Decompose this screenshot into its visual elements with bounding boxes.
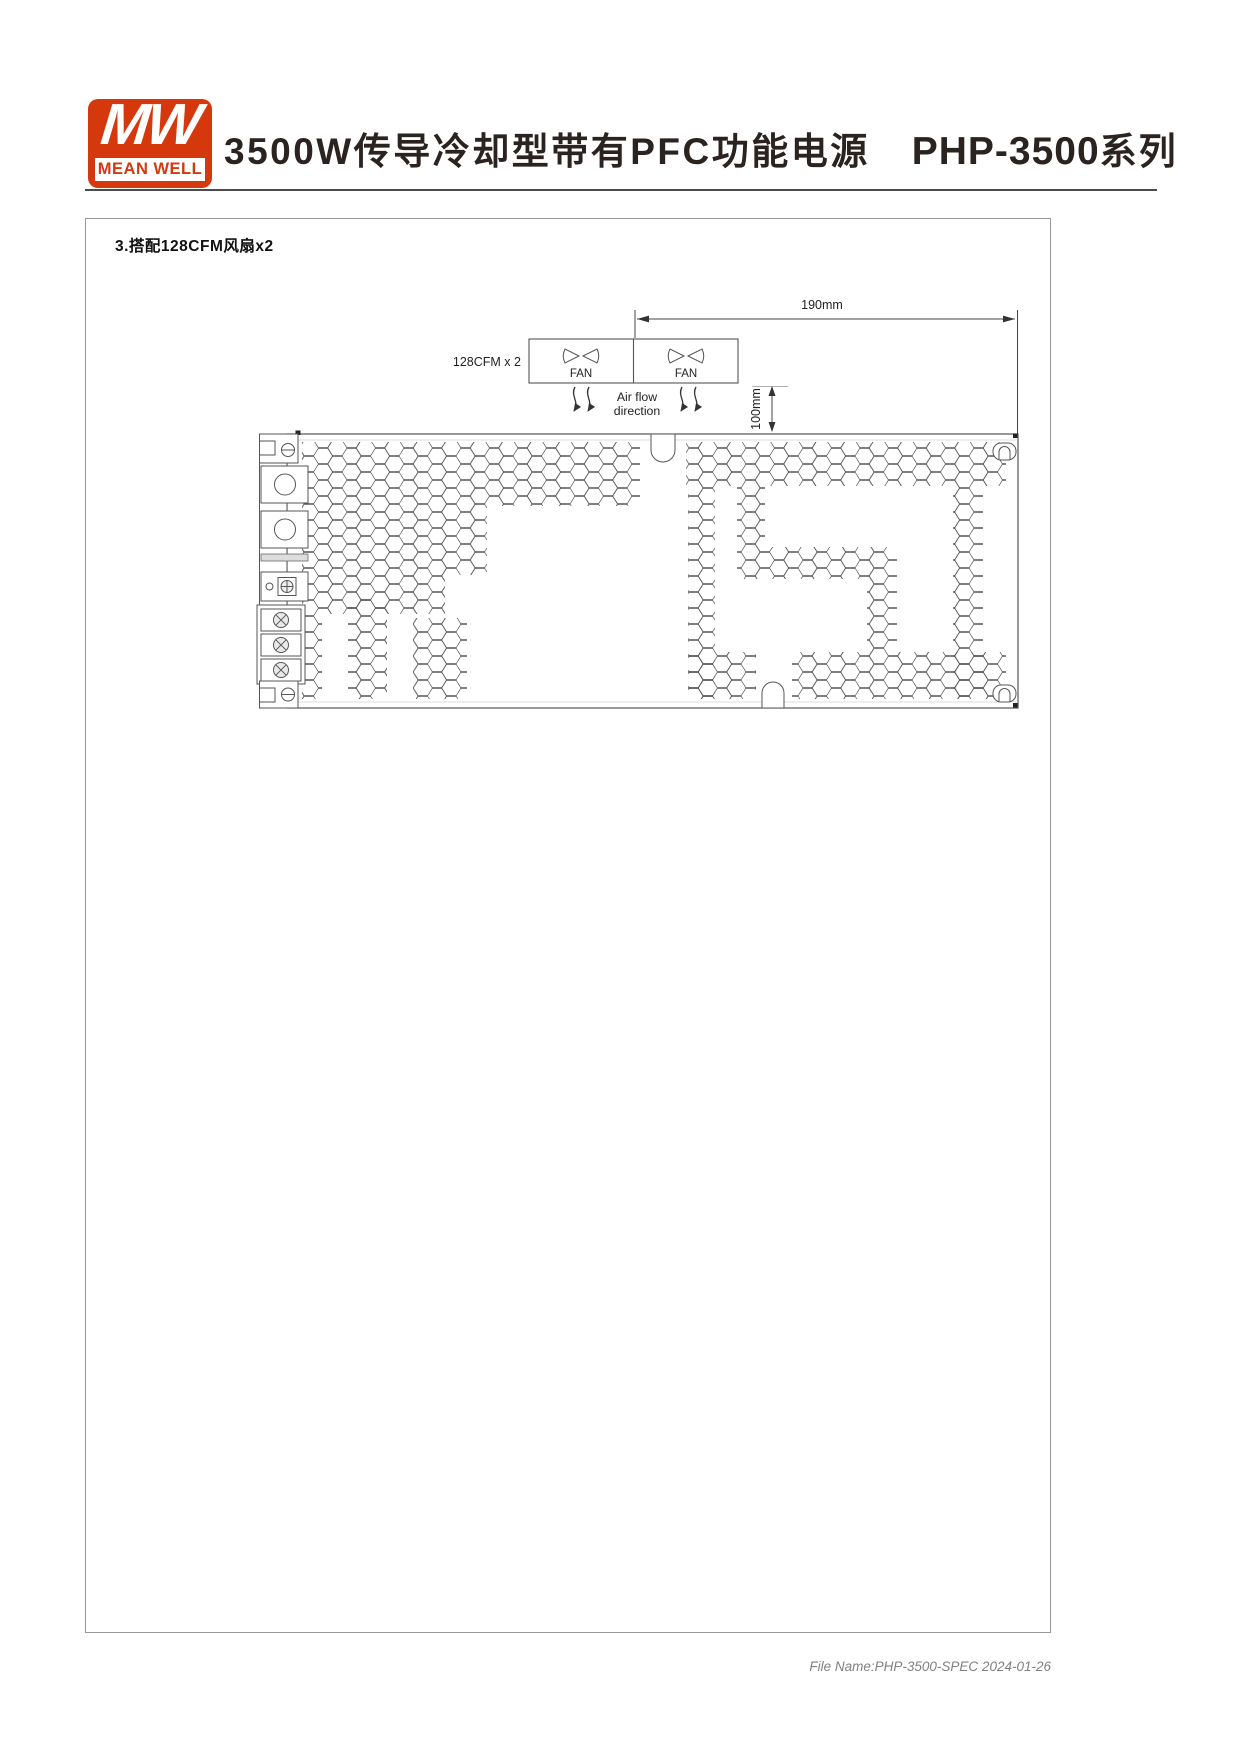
terminal-hole-icon (275, 519, 296, 540)
fan-caption: 128CFM x 2 (453, 355, 521, 369)
title-series-suffix: 系列 (1100, 131, 1178, 172)
section-label: 3.搭配128CFM风扇x2 (115, 234, 274, 256)
logo-brand-text: MEAN WELL (95, 158, 205, 181)
logo-monogram: MW (84, 91, 215, 158)
airflow-label-line1: Air flow (617, 390, 657, 404)
title-chinese: 3500W传导冷却型带有PFC功能电源 (224, 131, 870, 172)
page-title: 3500W传导冷却型带有PFC功能电源PHP-3500系列 (224, 130, 1178, 182)
small-hole-icon (266, 583, 273, 590)
terminal-hole-icon (275, 474, 296, 495)
footer-filename: File Name:PHP-3500-SPEC 2024-01-26 (0, 1659, 1051, 1674)
title-model: PHP-3500 (912, 130, 1100, 173)
fan-right-label: FAN (675, 368, 697, 380)
cooling-diagram: 190mm FAN FAN 128CFM x 2 Air flow direct… (230, 270, 1030, 725)
meanwell-logo: MW MEAN WELL (88, 99, 212, 188)
datasheet-page: { "header": { "logo": { "monogram": "MW"… (0, 0, 1240, 1753)
dim-190mm-label: 190mm (801, 298, 843, 312)
airflow-label-line2: direction (614, 404, 661, 418)
dim-100mm-label: 100mm (749, 388, 763, 430)
fan-assembly (529, 339, 738, 383)
panel-band (261, 554, 308, 561)
header-divider (85, 189, 1157, 191)
fan-left-label: FAN (570, 368, 592, 380)
